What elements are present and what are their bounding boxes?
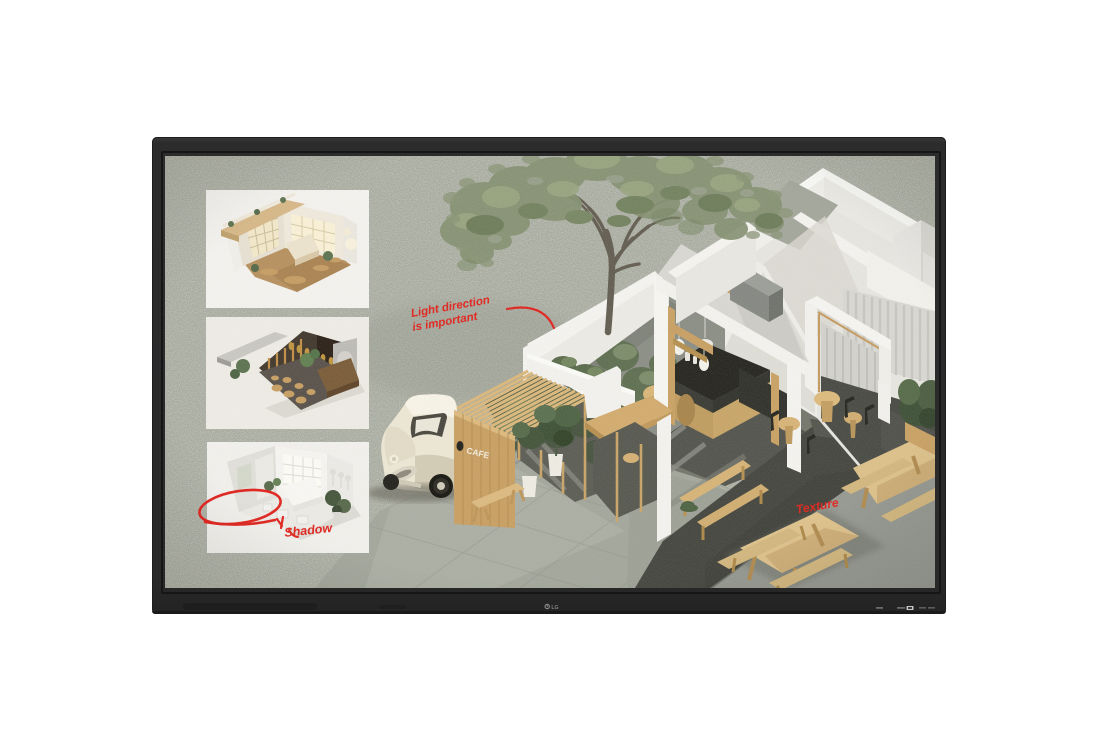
svg-text:LG: LG — [551, 605, 558, 610]
